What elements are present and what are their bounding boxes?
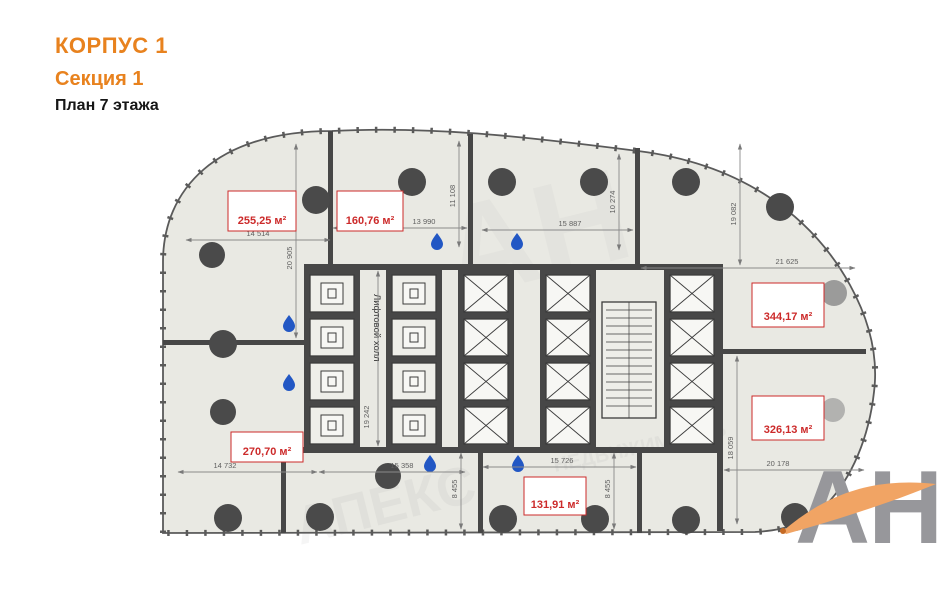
room-area-label: 131,91 м² — [524, 477, 586, 515]
agency-logo: АН — [780, 450, 941, 566]
dimension-label: 15 887 — [559, 219, 582, 228]
room-area-label: 344,17 м² — [752, 283, 824, 327]
floor-title: План 7 этажа — [55, 97, 168, 115]
building-title: КОРПУС 1 — [55, 33, 168, 59]
dimension-label: 20 178 — [767, 459, 790, 468]
dimension-label: 8 455 — [450, 480, 459, 499]
svg-text:160,76 м²: 160,76 м² — [346, 215, 395, 227]
dimension-label: 11 108 — [448, 185, 457, 207]
dimension-label: 18 059 — [726, 437, 735, 460]
dimension-label: 15 358 — [391, 461, 414, 470]
stairwell — [602, 302, 656, 418]
dimension-label: 21 625 — [776, 257, 799, 266]
dimension-label: 19 242 — [362, 406, 371, 429]
room-area-label: 326,13 м² — [752, 396, 824, 440]
room-area-label: 270,70 м² — [231, 432, 303, 462]
dimension-label: 20 905 — [285, 247, 294, 270]
elevator-hall-label: Лифтовой холл — [371, 294, 382, 362]
dimension-label: 19 082 — [729, 203, 738, 226]
svg-text:344,17 м²: 344,17 м² — [764, 311, 813, 323]
plan-header: КОРПУС 1 Секция 1 План 7 этажа — [55, 33, 168, 115]
section-title: Секция 1 — [55, 68, 168, 91]
dimension-label: 10 274 — [608, 191, 617, 214]
agency-logo-swoosh-tip — [780, 528, 786, 534]
dimension-label: 15 726 — [551, 456, 574, 465]
svg-text:131,91 м²: 131,91 м² — [531, 499, 580, 511]
svg-text:270,70 м²: 270,70 м² — [243, 446, 292, 458]
dimension-label: 13 990 — [413, 217, 436, 226]
svg-text:255,25 м²: 255,25 м² — [238, 215, 287, 227]
dimension-label: 8 455 — [603, 480, 612, 499]
floor-plan-page: КОРПУС 1 Секция 1 План 7 этажа АН АПЕКС … — [0, 0, 941, 600]
room-area-label: 160,76 м² — [337, 191, 403, 231]
room-area-label: 255,25 м² — [228, 191, 296, 231]
svg-text:326,13 м²: 326,13 м² — [764, 424, 813, 436]
